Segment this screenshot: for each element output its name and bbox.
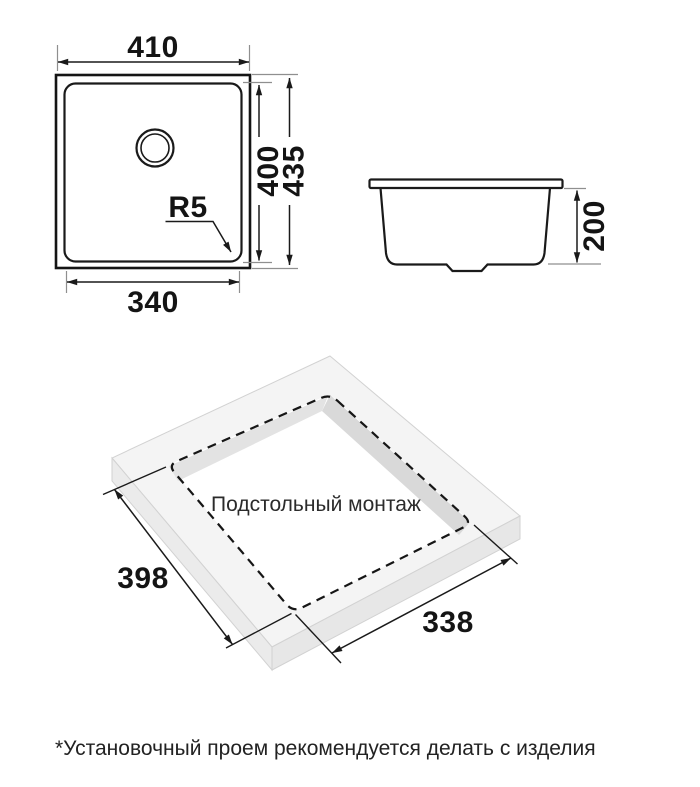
top-view: 410 340 400 435 R5 — [56, 31, 311, 319]
side-view: 200 — [370, 180, 612, 272]
dim-label-410: 410 — [127, 31, 179, 64]
dim-label-200: 200 — [578, 200, 611, 252]
dimension-bowl-width: 340 — [67, 271, 240, 319]
sink-technical-drawing: 410 340 400 435 R5 — [0, 0, 700, 787]
footnote: *Установочный проем рекомендуется делать… — [55, 737, 596, 760]
sink-rim-profile — [370, 180, 563, 189]
dim-label-r5: R5 — [168, 191, 207, 224]
installation-view: Подстольный монтаж 398 338 — [103, 356, 520, 670]
dim-label-398: 398 — [117, 562, 169, 595]
dimension-bowl-height: 200 — [548, 189, 611, 265]
dim-label-340: 340 — [127, 286, 179, 319]
dim-label-338: 338 — [422, 606, 474, 639]
sink-bowl-profile — [381, 188, 551, 271]
installation-caption: Подстольный монтаж — [211, 493, 421, 516]
sink-bowl-rim — [65, 84, 242, 262]
dim-label-435: 435 — [278, 145, 311, 197]
dimension-overall-width: 410 — [58, 31, 250, 71]
